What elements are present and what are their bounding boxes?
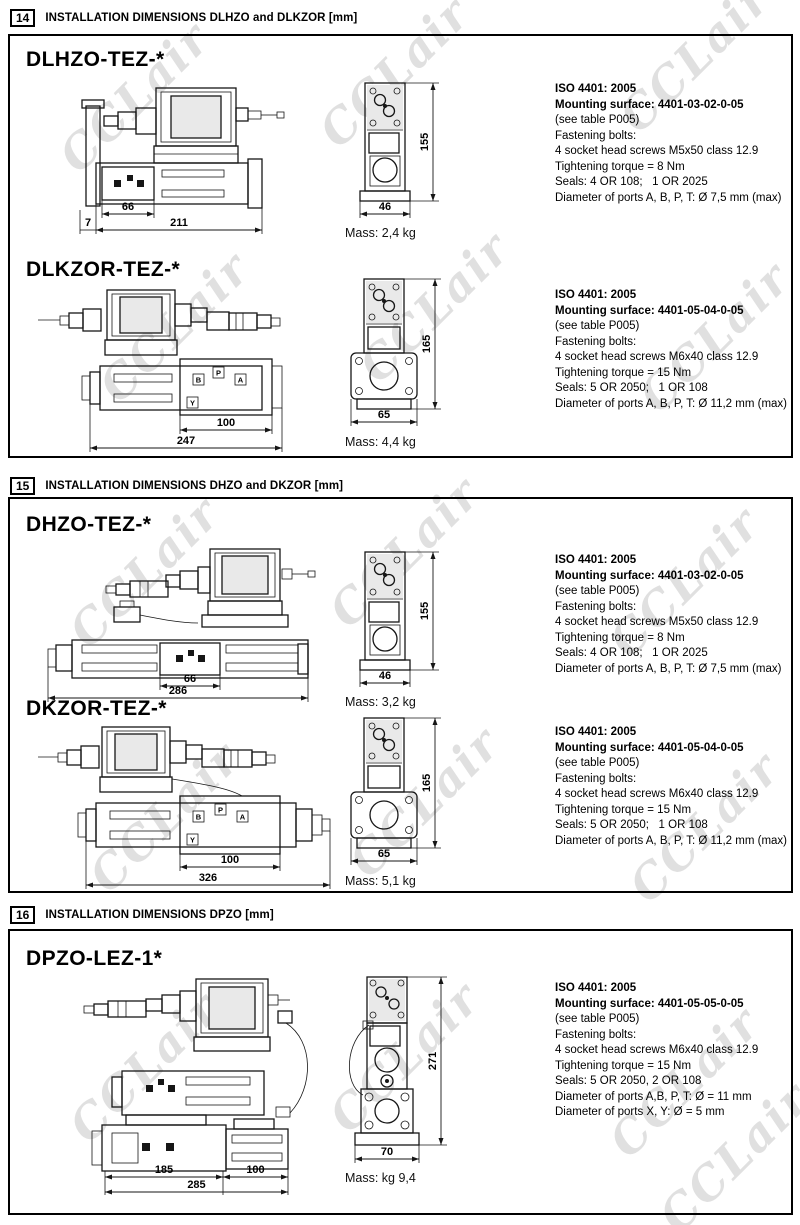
- iso-line: ISO 4401: 2005: [555, 981, 797, 997]
- section-15-header: 15 INSTALLATION DIMENSIONS DHZO and DKZO…: [10, 477, 343, 495]
- section-title: INSTALLATION DIMENSIONS DHZO and DKZOR […: [45, 480, 343, 492]
- valve-title-dpzo: DPZO-LEZ-1*: [26, 947, 162, 971]
- dim-label: 46: [379, 670, 391, 682]
- dim-label: 70: [381, 1146, 393, 1158]
- iso-line: Seals: 5 OR 2050; 1 OR 108: [555, 381, 797, 397]
- iso-line: Diameter of ports X, Y: Ø = 5 mm: [555, 1105, 797, 1121]
- iso-spec-dkzor: ISO 4401: 2005 Mounting surface: 4401-05…: [555, 725, 797, 849]
- dim-label: 286: [169, 685, 187, 697]
- iso-line: 4 socket head screws M6x40 class 12.9: [555, 1043, 797, 1059]
- section-title: INSTALLATION DIMENSIONS DPZO [mm]: [45, 909, 273, 921]
- dim-label: 247: [177, 435, 195, 447]
- section-number-box: 16: [10, 906, 35, 924]
- iso-line: (see table P005): [555, 756, 797, 772]
- iso-line: Fastening bolts:: [555, 129, 797, 145]
- iso-line: ISO 4401: 2005: [555, 553, 797, 569]
- section-title: INSTALLATION DIMENSIONS DLHZO and DLKZOR…: [45, 12, 357, 24]
- valve-title-dlhzo: DLHZO-TEZ-*: [26, 48, 165, 72]
- port-label: Y: [190, 399, 195, 408]
- iso-line: ISO 4401: 2005: [555, 725, 797, 741]
- iso-spec-dhzo: ISO 4401: 2005 Mounting surface: 4401-03…: [555, 553, 797, 677]
- iso-line: Fastening bolts:: [555, 1028, 797, 1044]
- dim-label: 155: [419, 602, 431, 620]
- iso-line: Diameter of ports A, B, P, T: Ø 7,5 mm (…: [555, 662, 797, 678]
- dkzor-side-view-drawing: B P A Y 100 326: [30, 717, 360, 895]
- dhzo-front-view-drawing: 155 46 Mass: 3,2 kg: [337, 547, 487, 709]
- iso-line: Diameter of ports A, B, P, T: Ø 7,5 mm (…: [555, 191, 797, 207]
- dim-label: 285: [187, 1179, 205, 1191]
- iso-line: 4 socket head screws M6x40 class 12.9: [555, 350, 797, 366]
- valve-title-dhzo: DHZO-TEZ-*: [26, 513, 151, 537]
- dim-label: 100: [217, 417, 235, 429]
- iso-line: Diameter of ports A, B, P, T: Ø 11,2 mm …: [555, 834, 797, 850]
- iso-line: ISO 4401: 2005: [555, 82, 797, 98]
- section-14-frame: DLHZO-TEZ-*: [8, 34, 793, 458]
- iso-line: Seals: 5 OR 2050, 2 OR 108: [555, 1074, 797, 1090]
- iso-line: (see table P005): [555, 113, 797, 129]
- dim-label: 65: [378, 409, 390, 421]
- iso-line: Mounting surface: 4401-05-04-0-05: [555, 741, 797, 757]
- dim-label: 66: [184, 673, 196, 685]
- section-16-header: 16 INSTALLATION DIMENSIONS DPZO [mm]: [10, 906, 274, 924]
- datasheet-page: CCLair CCLair CCLair CCLair CCLair CCLai…: [0, 0, 800, 1225]
- iso-line: Mounting surface: 4401-05-04-0-05: [555, 304, 797, 320]
- iso-spec-dpzo: ISO 4401: 2005 Mounting surface: 4401-05…: [555, 981, 797, 1121]
- iso-line: 4 socket head screws M5x50 class 12.9: [555, 144, 797, 160]
- iso-line: Fastening bolts:: [555, 600, 797, 616]
- valve-title-dlkzor: DLKZOR-TEZ-*: [26, 258, 180, 282]
- dim-label: 326: [199, 872, 217, 884]
- dim-label: 185: [155, 1164, 173, 1176]
- iso-line: Tightening torque = 8 Nm: [555, 631, 797, 647]
- iso-line: Tightening torque = 8 Nm: [555, 160, 797, 176]
- iso-line: Mounting surface: 4401-05-05-0-05: [555, 997, 797, 1013]
- mass-label-dlhzo: Mass: 2,4 kg: [345, 226, 487, 240]
- port-label: Y: [190, 836, 195, 845]
- port-label: P: [218, 806, 223, 815]
- dim-label: 271: [427, 1052, 439, 1070]
- mass-label-dkzor: Mass: 5,1 kg: [345, 874, 487, 888]
- iso-line: Fastening bolts:: [555, 335, 797, 351]
- dlhzo-side-view-drawing: 66 7 211: [30, 84, 330, 244]
- dhzo-side-view-drawing: 66 286: [30, 545, 350, 703]
- dim-label: 155: [419, 133, 431, 151]
- iso-spec-dlhzo: ISO 4401: 2005 Mounting surface: 4401-03…: [555, 82, 797, 206]
- iso-line: (see table P005): [555, 584, 797, 600]
- iso-line: Mounting surface: 4401-03-02-0-05: [555, 98, 797, 114]
- iso-line: Fastening bolts:: [555, 772, 797, 788]
- dlhzo-front-view-drawing: 155 46 Mass: 2,4 kg: [337, 78, 487, 240]
- iso-line: Diameter of ports A,B, P, T: Ø = 11 mm: [555, 1090, 797, 1106]
- iso-line: Seals: 5 OR 2050; 1 OR 108: [555, 818, 797, 834]
- mass-label-dhzo: Mass: 3,2 kg: [345, 695, 487, 709]
- iso-line: Mounting surface: 4401-03-02-0-05: [555, 569, 797, 585]
- port-label: A: [238, 376, 244, 385]
- iso-line: (see table P005): [555, 1012, 797, 1028]
- dim-label: 100: [246, 1164, 264, 1176]
- port-label: A: [240, 813, 246, 822]
- iso-line: (see table P005): [555, 319, 797, 335]
- dim-label: 65: [378, 848, 390, 860]
- dim-label: 211: [170, 217, 188, 229]
- port-label: B: [196, 813, 202, 822]
- iso-line: ISO 4401: 2005: [555, 288, 797, 304]
- section-15-frame: DHZO-TEZ-*: [8, 497, 793, 893]
- iso-line: Diameter of ports A, B, P, T: Ø 11,2 mm …: [555, 397, 797, 413]
- port-label: B: [196, 376, 202, 385]
- dim-label: 100: [221, 854, 239, 866]
- dim-label: 7: [85, 217, 91, 229]
- iso-line: Tightening torque = 15 Nm: [555, 1059, 797, 1075]
- mass-label-dpzo: Mass: kg 9,4: [345, 1171, 492, 1185]
- dpzo-side-view-drawing: 185 100 285: [30, 975, 350, 1197]
- section-number-box: 15: [10, 477, 35, 495]
- iso-line: Tightening torque = 15 Nm: [555, 803, 797, 819]
- iso-line: Tightening torque = 15 Nm: [555, 366, 797, 382]
- dim-label: 165: [421, 774, 433, 792]
- iso-line: 4 socket head screws M6x40 class 12.9: [555, 787, 797, 803]
- port-label: P: [216, 369, 221, 378]
- iso-line: Seals: 4 OR 108; 1 OR 2025: [555, 175, 797, 191]
- dim-label: 165: [421, 335, 433, 353]
- iso-line: Seals: 4 OR 108; 1 OR 2025: [555, 646, 797, 662]
- dim-label: 46: [379, 201, 391, 213]
- iso-spec-dlkzor: ISO 4401: 2005 Mounting surface: 4401-05…: [555, 288, 797, 412]
- section-number-box: 14: [10, 9, 35, 27]
- section-16-frame: DPZO-LEZ-1*: [8, 929, 793, 1215]
- section-14-header: 14 INSTALLATION DIMENSIONS DLHZO and DLK…: [10, 9, 357, 27]
- iso-line: 4 socket head screws M5x50 class 12.9: [555, 615, 797, 631]
- dlkzor-front-view-drawing: 165 65 Mass: 4,4 kg: [337, 274, 487, 449]
- mass-label-dlkzor: Mass: 4,4 kg: [345, 435, 487, 449]
- dpzo-front-view-drawing: 271 70 Mass: kg 9,4: [337, 973, 492, 1185]
- dlkzor-side-view-drawing: B P A Y 100 247: [30, 282, 360, 457]
- dkzor-front-view-drawing: 165 65 Mass: 5,1 kg: [337, 713, 487, 888]
- dim-label: 66: [122, 201, 134, 213]
